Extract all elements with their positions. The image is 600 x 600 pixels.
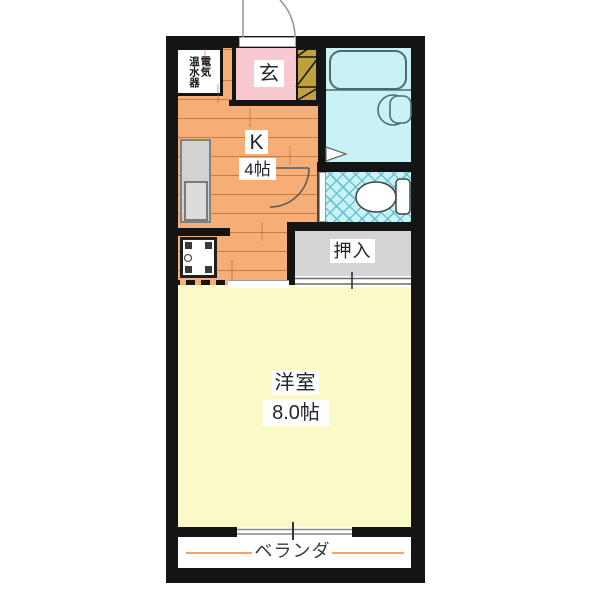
entry-door-swing-icon xyxy=(243,0,295,37)
kitchen-size-text: 4帖 xyxy=(244,161,270,178)
wall-window-left xyxy=(178,527,237,537)
wall-closet-left xyxy=(287,222,295,285)
shoe-cabinet-hatch xyxy=(296,48,318,102)
kitchen-room-dashed-boundary xyxy=(171,280,228,285)
outer-wall-right xyxy=(411,36,425,583)
room-bathroom xyxy=(326,48,411,162)
western-room-label-text: 洋室 xyxy=(275,373,317,393)
balcony-sliding-window xyxy=(237,527,352,537)
entrance-label: 玄 xyxy=(254,60,284,87)
wall-bath-toilet xyxy=(317,162,411,172)
water-heater-box: 電気 温水器 xyxy=(175,47,223,96)
closet-label-text: 押入 xyxy=(334,242,372,260)
western-room-label: 洋室 xyxy=(272,370,319,395)
toilet-door xyxy=(319,172,326,222)
room-toilet xyxy=(326,172,411,222)
wall-entrance-left xyxy=(232,48,236,102)
kitchen-size-label: 4帖 xyxy=(239,158,276,180)
closet-label: 押入 xyxy=(330,239,375,263)
entry-door-opening xyxy=(239,37,296,47)
outer-wall-bottom xyxy=(166,568,425,583)
entrance-label-text: 玄 xyxy=(259,64,279,84)
wall-toilet-closet xyxy=(289,222,411,231)
western-room-size-label: 8.0帖 xyxy=(263,400,329,426)
floor-plan: 電気 温水器 xyxy=(0,0,600,600)
wall-window-right xyxy=(352,527,411,537)
water-heater-label: 電気 温水器 xyxy=(188,56,211,88)
kitchen-room-threshold xyxy=(228,280,289,288)
washing-machine-pan-icon xyxy=(180,237,217,278)
closet-sliding-door xyxy=(295,276,411,287)
outer-wall-left xyxy=(166,36,178,583)
veranda-label-text: ベランダ xyxy=(255,542,331,560)
western-room-size-text: 8.0帖 xyxy=(272,403,320,423)
wall-bath-left xyxy=(318,48,326,163)
wall-kitchen-stub xyxy=(170,228,230,236)
kitchen-sink xyxy=(184,181,208,221)
kitchen-label-text: K xyxy=(249,132,263,153)
wall-entrance-bottom xyxy=(229,100,318,106)
kitchen-label: K xyxy=(245,130,268,154)
veranda-label: ベランダ xyxy=(253,540,332,561)
